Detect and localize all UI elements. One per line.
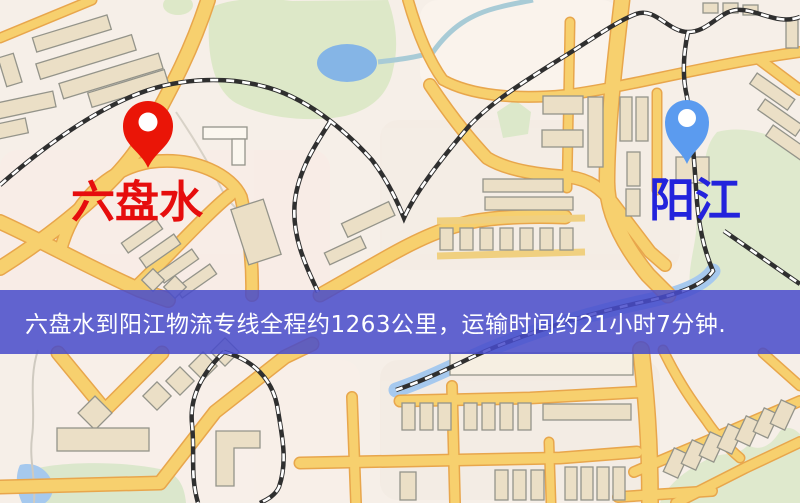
destination-label: 阳江: [649, 173, 741, 227]
origin-label: 六盘水: [71, 177, 204, 228]
route-summary-text: 六盘水到阳江物流专线全程约1263公里，运输时间约21小时7分钟.: [25, 305, 726, 339]
destination-pin-hole: [678, 109, 696, 127]
route-summary-banner: 六盘水到阳江物流专线全程约1263公里，运输时间约21小时7分钟.: [0, 290, 800, 354]
pond: [317, 44, 377, 82]
origin-pin-hole: [139, 113, 158, 132]
map-canvas[interactable]: 六盘水 阳江 六盘水到阳江物流专线全程约1263公里，运输时间约21小时7分钟.: [0, 0, 800, 503]
